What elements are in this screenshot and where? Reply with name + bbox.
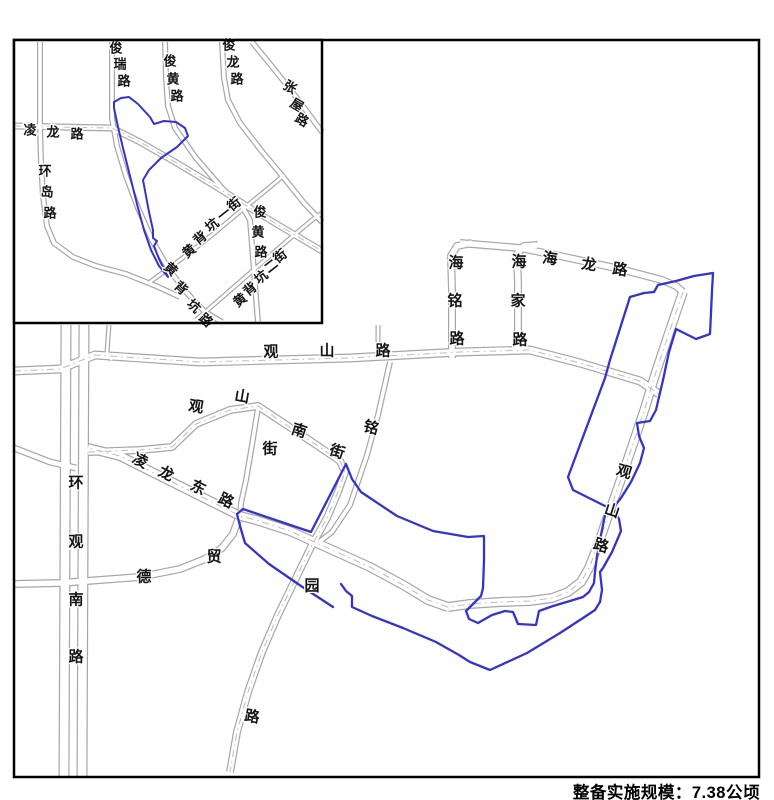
inset-road-label-char: 俊: [109, 41, 122, 56]
inset-road-label-char: 俊: [163, 54, 176, 69]
main-road-label-char: 观: [68, 534, 83, 551]
inset-road-label-char: 环: [38, 164, 51, 179]
main-road-label-char: 路: [68, 648, 84, 666]
inset-road-label-char: 瑞: [113, 57, 126, 72]
inset-road-label-char: 岛: [40, 185, 53, 200]
map-canvas: 观山路观山路海铭路海家路海龙路环观南路凌龙东路观山南街街铭贸德园路俊瑞路俊黄路俊…: [0, 0, 774, 800]
inset-road-label-char: 路: [43, 206, 57, 221]
inset-road-label-char: 路: [230, 72, 244, 87]
main-road-label-char: 观: [263, 344, 278, 361]
main-road-label-char: 德: [136, 568, 151, 586]
main-road-label-char: 街: [261, 440, 277, 458]
main-road-label-char: 路: [375, 342, 391, 360]
road-fill-huanguan-nanlu-west: [64, 325, 66, 776]
inset-road-label-char: 路: [170, 89, 184, 104]
inset-road-label-char: 龙: [226, 55, 239, 70]
main-road-label-char: 园: [304, 578, 319, 595]
scale-note: 整备实施规模：7.38公顷: [573, 779, 760, 800]
inset-road-label-char: 路: [117, 74, 131, 89]
main-road-label-char: 铭: [447, 292, 462, 310]
main-road-label-char: 路: [449, 330, 465, 348]
main-road-label-char: 观: [187, 397, 205, 416]
main-road-label-char: 海: [541, 249, 558, 269]
main-road-label-char: 家: [510, 292, 525, 310]
main-road-label-char: 南: [68, 591, 83, 609]
main-road-label-char: 山: [233, 387, 251, 406]
main-road-label-char: 路: [512, 331, 528, 349]
inset-layer: 俊瑞路俊黄路俊龙路张屋路凌龙路环岛路黄背坑一街俊黄路黄背坑二街黄背坑路: [14, 38, 322, 331]
inset-road-label-char: 路: [254, 245, 268, 260]
main-road-label-char: 海: [448, 254, 463, 272]
main-road-label-char: 环: [68, 475, 83, 492]
inset-road-label-char: 黄: [251, 225, 264, 240]
main-road-label-char: 山: [319, 343, 334, 360]
inset-road-label-char: 龙: [46, 125, 59, 140]
inset-road-label-char: 路: [70, 127, 84, 142]
inset-road-label-char: 凌: [23, 123, 37, 138]
map-svg: 观山路观山路海铭路海家路海龙路环观南路凌龙东路观山南街街铭贸德园路俊瑞路俊黄路俊…: [0, 0, 774, 800]
main-road-label-char: 龙: [579, 254, 597, 274]
main-road-label-char: 海: [511, 253, 526, 271]
inset-road-label-char: 黄: [166, 72, 179, 87]
main-road-label-char: 贸: [206, 548, 221, 566]
road-fill-huanguan-nanlu-east: [82, 325, 84, 776]
map-page: 龙华区观澜街道君子布茂康、新鑫威土地整备利益统筹项目申报范围示意图 观山路观山路…: [0, 0, 774, 800]
inset-road-label-char: 俊: [253, 205, 266, 220]
